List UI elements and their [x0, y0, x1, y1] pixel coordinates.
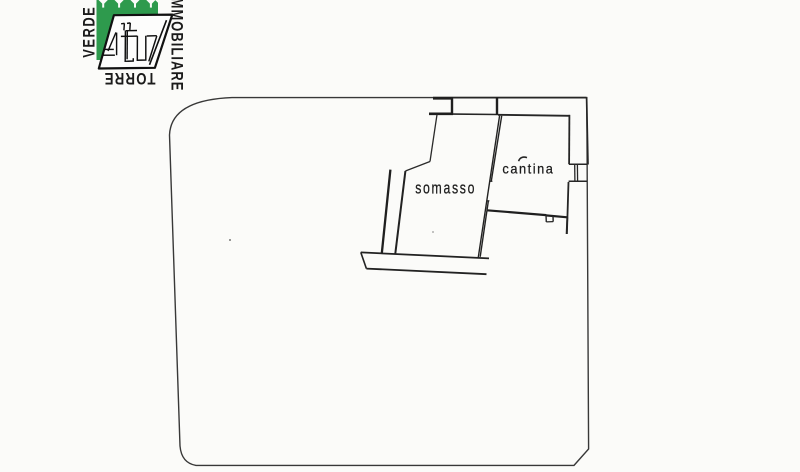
svg-text:IMMOBILIARE: IMMOBILIARE [167, 0, 185, 91]
svg-text:cantina: cantina [502, 161, 554, 176]
svg-text:VERDE: VERDE [81, 6, 99, 58]
svg-text:TORRE: TORRE [104, 68, 156, 87]
svg-text:somasso: somasso [415, 180, 476, 198]
